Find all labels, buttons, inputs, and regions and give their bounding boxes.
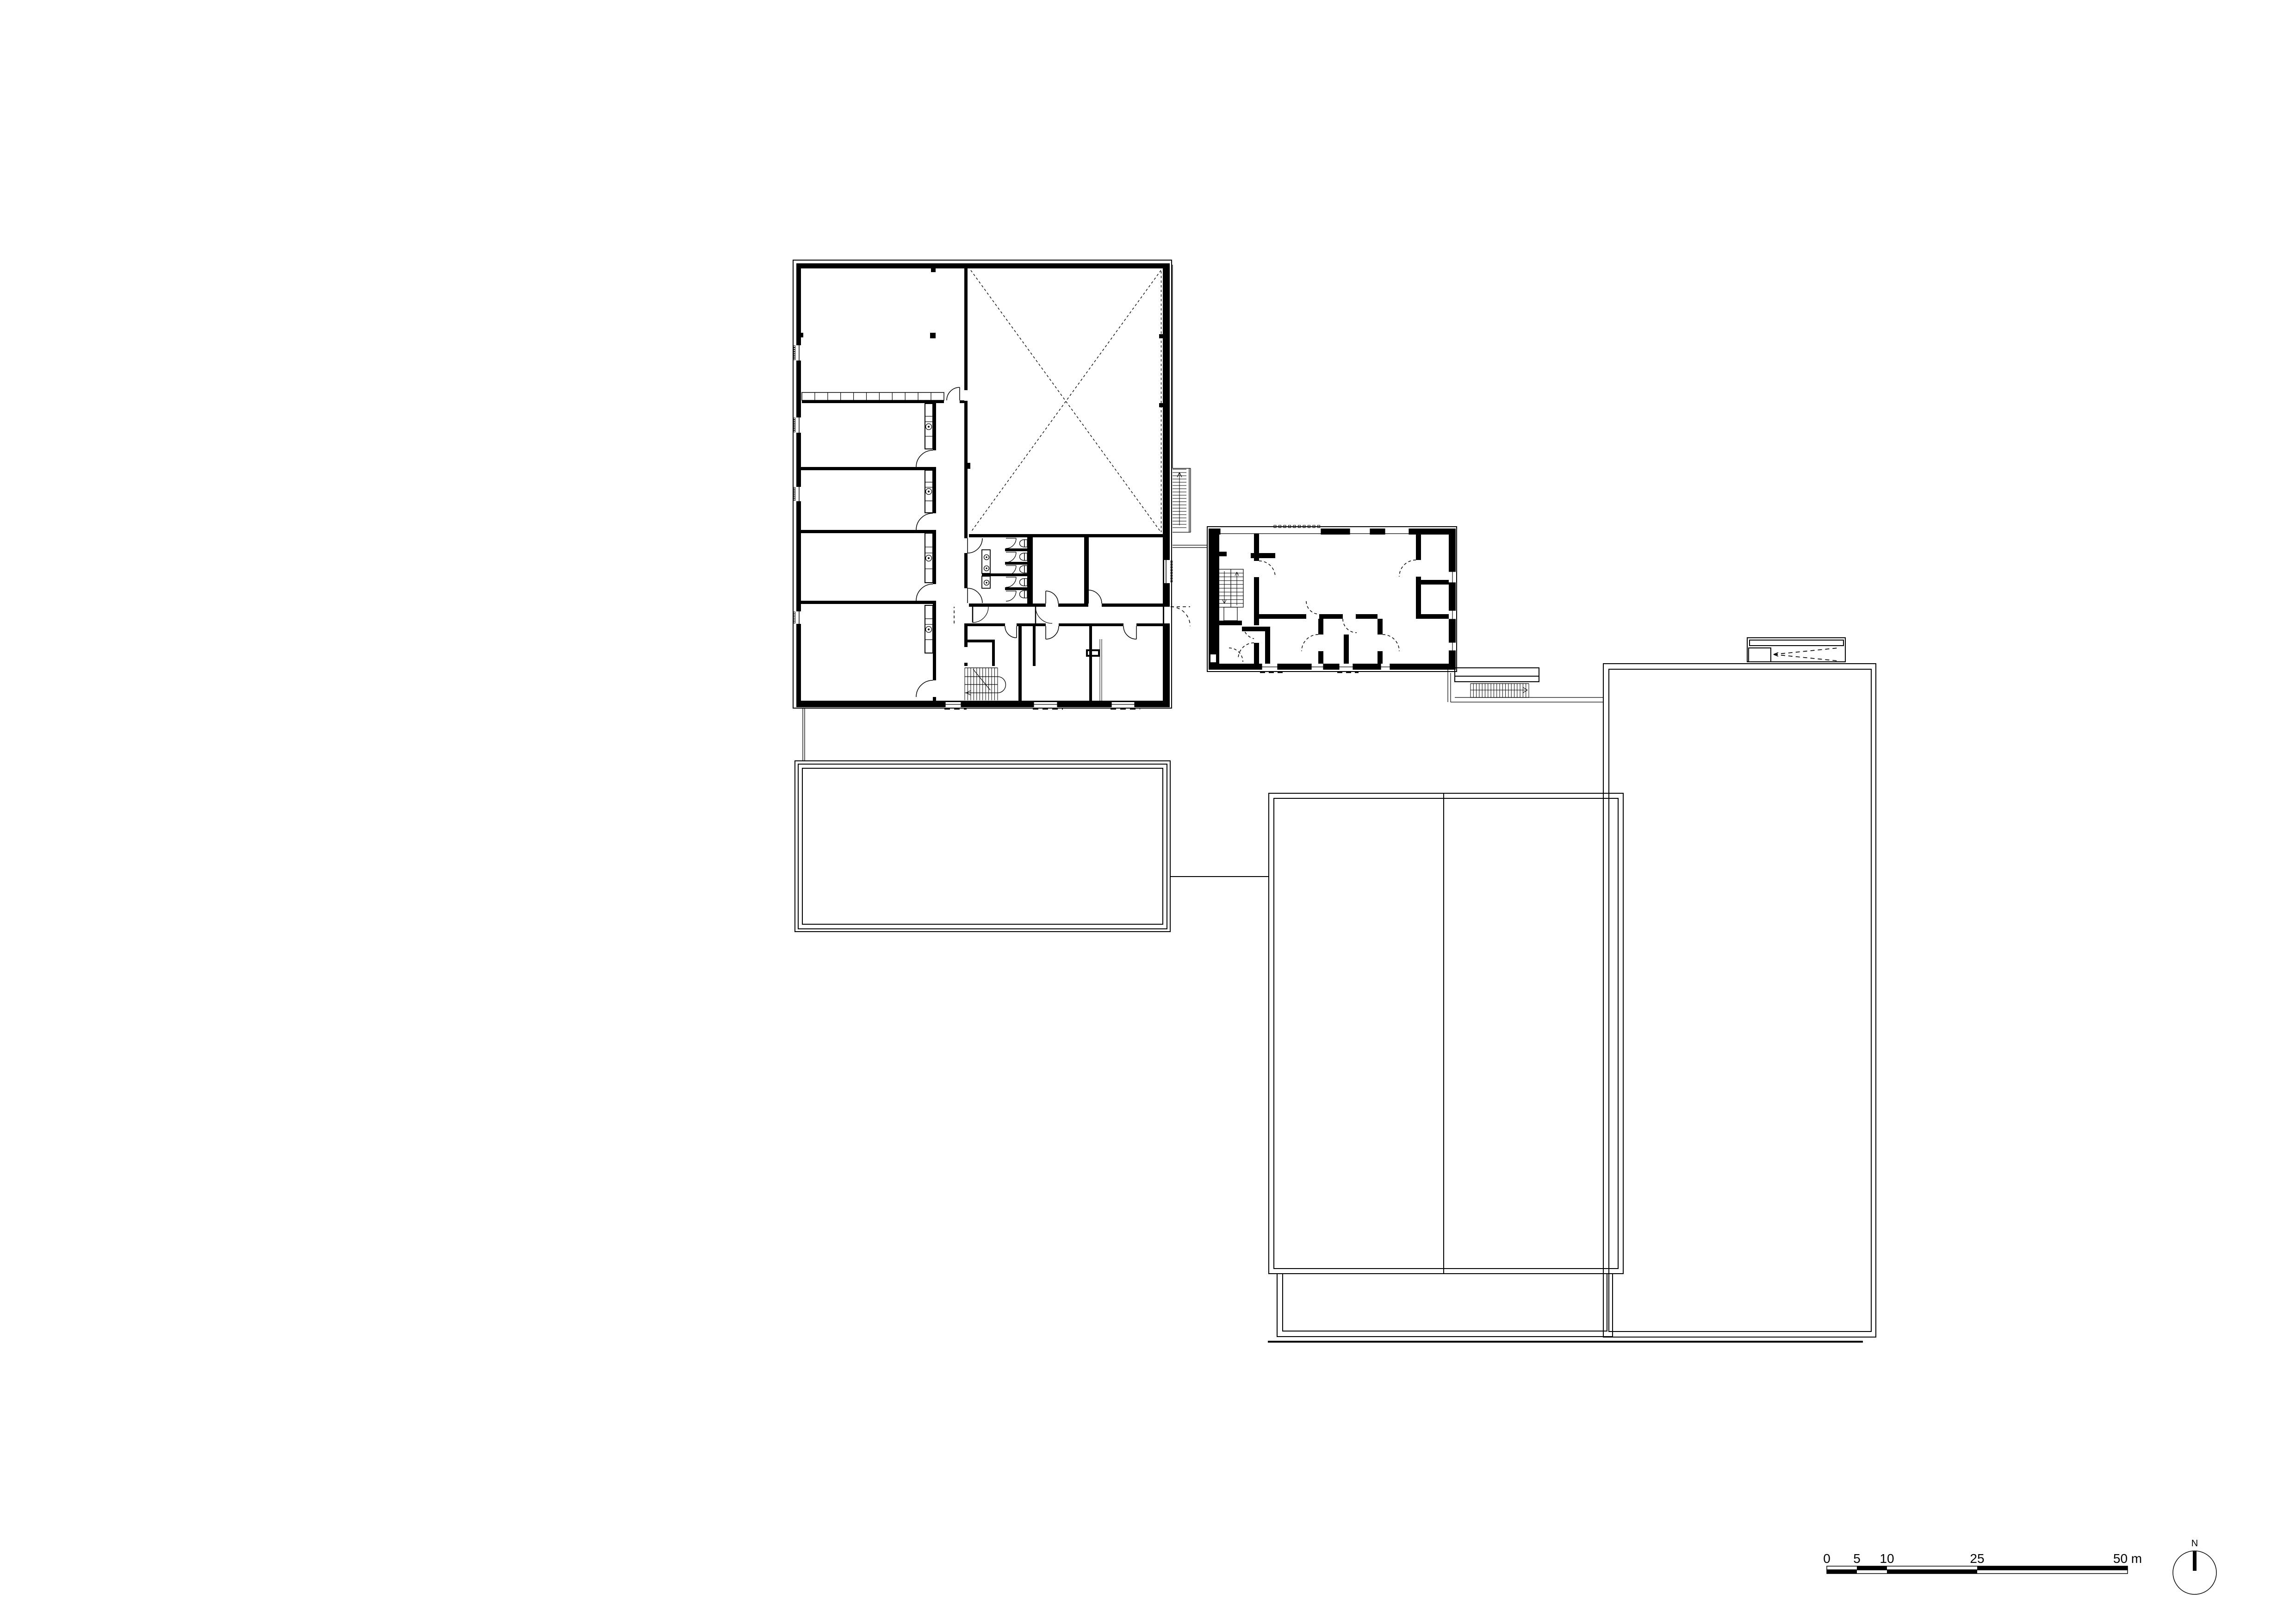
svg-text:10: 10 (1880, 1551, 1894, 1566)
svg-text:0: 0 (1823, 1551, 1831, 1566)
svg-text:N: N (2191, 1538, 2198, 1549)
svg-text:5: 5 (1853, 1551, 1861, 1566)
svg-text:50 m: 50 m (2113, 1551, 2142, 1566)
svg-text:25: 25 (1970, 1551, 1984, 1566)
